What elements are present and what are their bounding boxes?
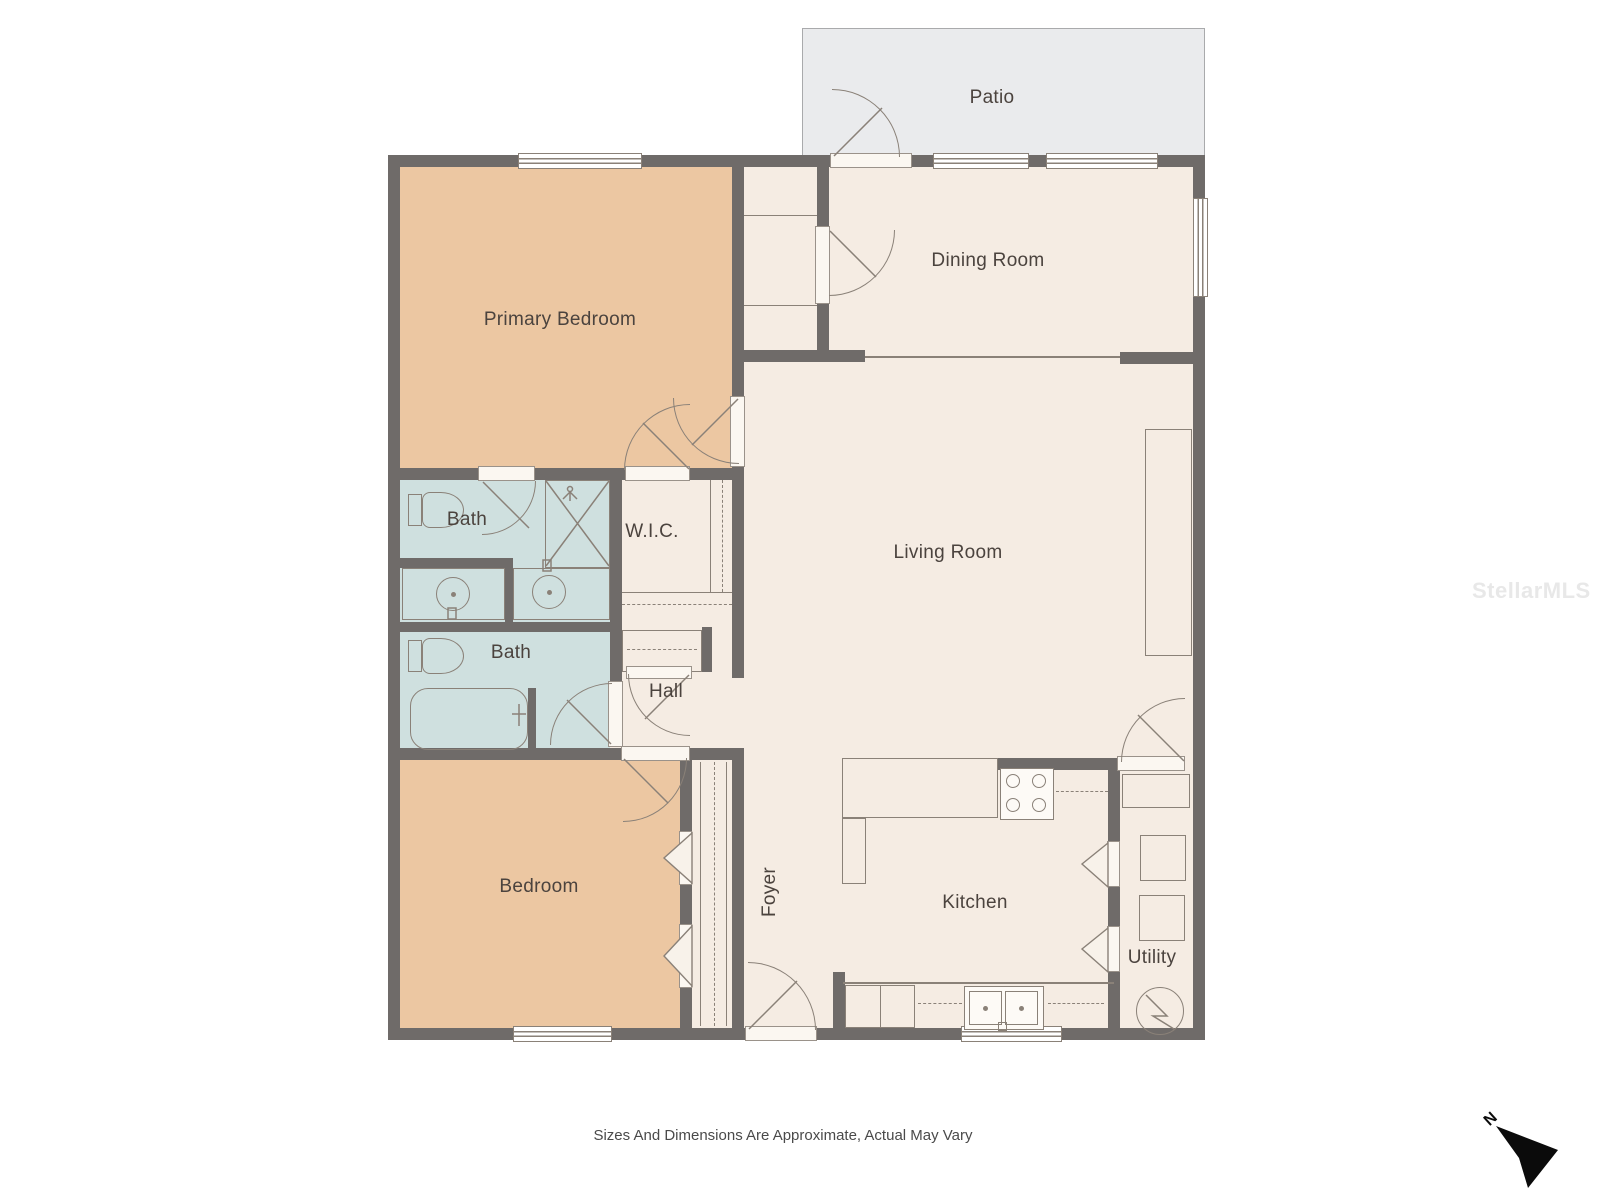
room-label-primary-bedroom: Primary Bedroom — [484, 309, 636, 331]
counter-edge — [843, 982, 1114, 984]
wall — [1108, 970, 1120, 1028]
wall — [680, 986, 692, 1028]
sink-drain — [983, 1006, 988, 1011]
cabinet-divider — [880, 985, 881, 1028]
bathtub — [410, 688, 528, 750]
wic-shelf-dash — [622, 604, 732, 605]
wic-shelf-line — [710, 480, 711, 592]
wall — [610, 468, 622, 632]
window — [518, 153, 642, 169]
disclaimer-text: Sizes And Dimensions Are Approximate, Ac… — [383, 1127, 1183, 1144]
bifold-opening — [679, 924, 692, 988]
sink-drain — [547, 590, 552, 595]
north-label: N — [1481, 1109, 1501, 1129]
room-label-patio: Patio — [970, 87, 1015, 109]
wall — [400, 468, 480, 480]
window — [933, 153, 1029, 169]
counter-dash — [918, 1003, 962, 1004]
room-label-dining-room: Dining Room — [931, 250, 1044, 272]
wall — [1108, 770, 1120, 843]
floor-plan: Patio Primary Bedroom Dining Room Living… — [0, 0, 1600, 1200]
window — [1193, 198, 1208, 297]
wall — [1120, 352, 1193, 364]
wall — [817, 302, 829, 352]
stove-burner — [1006, 774, 1020, 788]
toilet-tank — [408, 494, 422, 526]
water-heater — [1136, 987, 1184, 1035]
room-label-living-room: Living Room — [894, 542, 1003, 564]
room-label-bath-upper: Bath — [447, 509, 487, 531]
toilet-tank — [408, 640, 422, 672]
room-label-wic: W.I.C. — [625, 521, 679, 543]
wall — [688, 748, 744, 760]
watermark: StellarMLS — [1472, 578, 1591, 604]
vestibule-closet-line — [744, 215, 817, 216]
stove-burner — [1006, 798, 1020, 812]
counter-dash — [1048, 1003, 1104, 1004]
hall-closet-shelf-dash — [627, 649, 697, 650]
door-opening — [478, 466, 535, 481]
room-label-foyer: Foyer — [759, 867, 781, 917]
sink-drain — [451, 592, 456, 597]
wic-shelf-line — [622, 592, 732, 593]
counter-dash — [1056, 791, 1108, 792]
room-label-utility: Utility — [1128, 947, 1177, 969]
bifold-opening — [1107, 841, 1120, 887]
window — [513, 1026, 612, 1042]
kitchen-peninsula — [842, 758, 998, 818]
room-label-bath-lower: Bath — [491, 642, 531, 664]
sink-drain — [1019, 1006, 1024, 1011]
bedroom-closet-dash — [714, 762, 715, 1026]
utility-cabinet — [1122, 774, 1190, 808]
stove-burner — [1032, 798, 1046, 812]
wall — [400, 558, 505, 568]
door-opening — [815, 226, 830, 304]
kitchen-peninsula — [842, 818, 866, 884]
bedroom-closet-line — [726, 762, 727, 1026]
bifold-opening — [1107, 926, 1120, 972]
room-label-kitchen: Kitchen — [942, 892, 1007, 914]
shower — [545, 480, 610, 568]
wall — [505, 558, 513, 625]
dryer — [1139, 895, 1185, 941]
wall — [833, 972, 845, 1028]
wall — [610, 632, 622, 683]
vestibule-closet-line — [744, 305, 817, 306]
bedroom-closet-line — [700, 762, 701, 1026]
window — [1046, 153, 1158, 169]
room-label-bedroom: Bedroom — [499, 876, 578, 898]
wall — [702, 627, 712, 672]
north-arrow-shape — [1496, 1126, 1558, 1188]
wall — [732, 760, 744, 1028]
wall — [528, 688, 536, 748]
wall — [817, 167, 829, 228]
wall — [388, 155, 400, 1040]
wall — [400, 622, 618, 632]
wic-shelf-dash — [722, 480, 723, 592]
room-label-hall: Hall — [649, 681, 683, 703]
washer — [1140, 835, 1186, 881]
living-room-builtin — [1145, 429, 1192, 656]
bifold-opening — [679, 831, 692, 885]
north-arrow-icon: N — [1478, 1098, 1562, 1190]
wall — [680, 883, 692, 926]
sink-faucet — [998, 1022, 1007, 1031]
stove-burner — [1032, 774, 1046, 788]
wall — [732, 350, 865, 362]
wall — [688, 468, 732, 480]
wall — [1108, 885, 1120, 928]
